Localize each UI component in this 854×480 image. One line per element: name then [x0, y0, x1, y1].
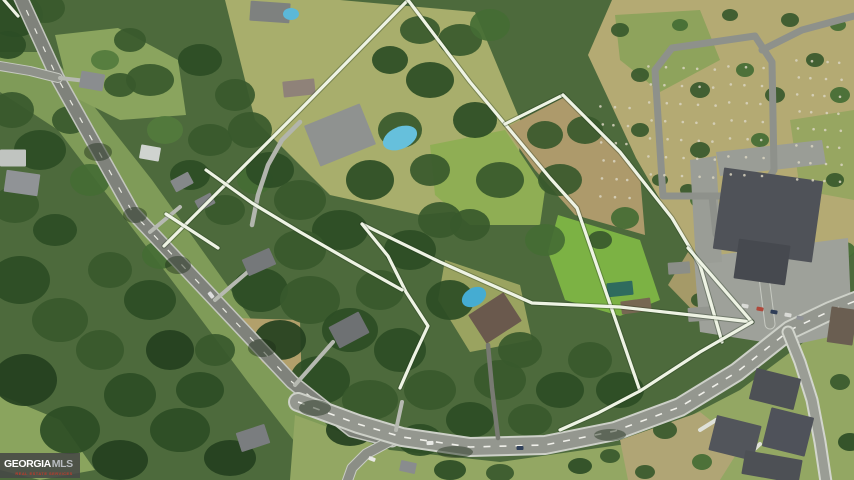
gravestone: [666, 102, 669, 105]
gravestone: [798, 161, 801, 164]
tree-canopy: [32, 298, 88, 342]
aerial-listing-photo: GEORGIA MLS REAL ESTATE SERVICES: [0, 0, 854, 480]
gravestone: [745, 66, 748, 69]
gravestone: [823, 180, 826, 183]
parked-car: [517, 446, 524, 450]
gravestone: [600, 141, 603, 144]
tree-canopy: [150, 408, 210, 452]
tree-canopy: [826, 173, 844, 187]
tree-canopy: [188, 124, 232, 156]
gravestone: [840, 79, 843, 82]
tree-canopy: [631, 123, 649, 137]
gravestone: [713, 122, 716, 125]
tree-shadow: [165, 256, 191, 274]
gravestone: [760, 139, 763, 142]
tree-canopy: [346, 160, 394, 200]
gravestone: [680, 139, 683, 142]
gravestone: [840, 130, 843, 133]
gravestone: [664, 120, 667, 123]
gravestone: [812, 94, 815, 97]
tree-canopy: [830, 87, 850, 103]
tree-canopy: [450, 209, 490, 241]
gravestone: [729, 137, 732, 140]
tree-shadow: [248, 339, 276, 357]
gravestone: [647, 155, 650, 158]
tree-canopy: [195, 334, 235, 366]
tree-canopy: [146, 330, 194, 370]
tree-canopy: [400, 16, 440, 44]
gravestone: [628, 197, 631, 200]
gravestone: [681, 85, 684, 88]
gravestone: [759, 103, 762, 106]
mls-watermark: GEORGIA MLS REAL ESTATE SERVICES: [0, 453, 80, 478]
tree-shadow: [84, 143, 112, 161]
tree-canopy: [76, 330, 124, 370]
gravestone: [809, 162, 812, 165]
cemetery-church-connector: [712, 196, 716, 234]
tree-canopy: [525, 224, 565, 256]
tree-canopy: [611, 207, 639, 229]
gravestone: [599, 195, 602, 198]
gravestone: [837, 113, 840, 116]
tree-shadow: [123, 207, 147, 223]
gravestone: [762, 121, 765, 124]
gravestone: [826, 146, 829, 149]
gravestone: [712, 176, 715, 179]
gravestone: [682, 157, 685, 160]
gravestone: [663, 84, 666, 87]
tree-canopy: [508, 404, 552, 436]
gravestone: [746, 138, 749, 141]
gravestone: [627, 125, 630, 128]
north-neighbor-pool: [283, 8, 299, 20]
gravestone: [679, 103, 682, 106]
tree-canopy: [631, 68, 649, 82]
tree-canopy: [806, 53, 824, 67]
tree-canopy: [406, 62, 454, 98]
gravestone: [649, 137, 652, 140]
gravestone: [650, 119, 653, 122]
gravestone: [602, 123, 605, 126]
tree-canopy: [690, 142, 710, 158]
gravestone: [615, 178, 618, 181]
gravestone: [650, 173, 653, 176]
tree-canopy: [672, 19, 688, 31]
gravestone: [647, 65, 650, 68]
gravestone: [601, 177, 604, 180]
shed-gray-1: [668, 261, 691, 275]
tree-canopy: [722, 9, 738, 21]
gravestone: [795, 59, 798, 62]
tree-canopy: [372, 46, 408, 74]
gravestone: [602, 159, 605, 162]
tree-canopy: [404, 370, 456, 410]
gravestone: [711, 140, 714, 143]
church-wing: [733, 239, 790, 286]
gravestone: [712, 86, 715, 89]
house-roof-icon: [52, 455, 854, 480]
gravestone: [682, 121, 685, 124]
gravestone: [810, 111, 813, 114]
gravestone: [838, 62, 841, 65]
tree-canopy: [498, 332, 542, 368]
tree-canopy: [147, 116, 183, 144]
gravestone: [614, 106, 617, 109]
gravestone: [811, 145, 814, 148]
gravestone: [826, 61, 829, 64]
gravestone: [626, 179, 629, 182]
gravestone: [648, 101, 651, 104]
tree-canopy: [446, 402, 494, 438]
tree-canopy: [232, 268, 288, 312]
gravestone: [665, 66, 668, 69]
gravestone: [761, 175, 764, 178]
shed-teal-roof: [606, 281, 633, 298]
gravestone: [826, 112, 829, 115]
gravestone: [612, 124, 615, 127]
tree-canopy: [178, 44, 222, 76]
tree-canopy: [536, 372, 584, 408]
gravestone: [728, 101, 731, 104]
tree-canopy: [830, 374, 850, 390]
watermark-brand-row: GEORGIA MLS: [4, 455, 73, 471]
gravestone: [663, 174, 666, 177]
gravestone: [839, 181, 842, 184]
gravestone: [823, 95, 826, 98]
gravestone: [825, 78, 828, 81]
tree-canopy: [88, 252, 132, 288]
watermark-brand-mls-wrap: MLS: [52, 455, 73, 471]
tree-canopy: [568, 342, 612, 378]
gravestone: [730, 173, 733, 176]
gravestone: [809, 77, 812, 80]
gravestone: [730, 119, 733, 122]
gravestone: [727, 65, 730, 68]
tree-canopy: [274, 180, 326, 220]
tree-canopy: [736, 63, 754, 77]
gravestone: [795, 144, 798, 147]
gravestone: [798, 110, 801, 113]
gravestone: [798, 76, 801, 79]
gravestone: [744, 120, 747, 123]
gravestone: [727, 155, 730, 158]
gravestone: [698, 176, 701, 179]
gravestone: [714, 104, 717, 107]
gravestone: [745, 156, 748, 159]
gravestone: [698, 140, 701, 143]
house-west-c: [0, 150, 26, 167]
tree-canopy: [104, 73, 136, 97]
watermark-brand-georgia: GEORGIA: [4, 459, 51, 470]
tree-canopy: [611, 23, 629, 37]
satellite-map: [0, 0, 854, 480]
tree-canopy: [470, 9, 510, 41]
gravestone: [698, 86, 701, 89]
gravestone: [614, 196, 617, 199]
gravestone: [796, 178, 799, 181]
tree-canopy: [104, 373, 156, 417]
tree-canopy: [476, 162, 524, 198]
tree-canopy: [215, 79, 255, 111]
tree-shadow: [594, 429, 626, 441]
tree-canopy: [124, 280, 176, 320]
gravestone: [743, 174, 746, 177]
gravestone: [824, 129, 827, 132]
gravestone: [797, 127, 800, 130]
tree-canopy: [33, 214, 77, 246]
house-west-d: [4, 170, 41, 197]
gravestone: [666, 138, 669, 141]
gravestone: [811, 60, 814, 63]
tree-canopy: [410, 154, 450, 186]
gravestone: [697, 104, 700, 107]
gravestone: [665, 156, 668, 159]
gravestone: [838, 147, 841, 150]
tree-canopy: [274, 230, 326, 270]
gravestone: [613, 160, 616, 163]
tree-canopy: [40, 406, 100, 454]
tree-canopy: [176, 372, 224, 408]
gravestone: [714, 68, 717, 71]
gravestone: [625, 143, 628, 146]
gravestone: [650, 83, 653, 86]
house-west-b: [282, 78, 315, 97]
gravestone: [812, 179, 815, 182]
gravestone: [762, 67, 765, 70]
parked-car: [426, 441, 433, 445]
gravestone: [681, 175, 684, 178]
tree-canopy: [114, 28, 146, 52]
gravestone: [730, 83, 733, 86]
gravestone: [839, 96, 842, 99]
gravestone: [840, 164, 843, 167]
tree-canopy: [91, 50, 119, 70]
gravestone: [695, 122, 698, 125]
gravestone: [762, 157, 765, 160]
gravestone: [825, 163, 828, 166]
gravestone: [714, 158, 717, 161]
gravestone: [682, 67, 685, 70]
gravestone: [696, 158, 699, 161]
tree-canopy: [781, 13, 799, 27]
gravestone: [761, 85, 764, 88]
gravestone: [599, 105, 602, 108]
gravestone: [812, 128, 815, 131]
tree-canopy: [527, 121, 563, 149]
tree-canopy: [690, 82, 710, 98]
gravestone: [743, 84, 746, 87]
tree-shadow: [299, 400, 331, 416]
gravestone: [696, 68, 699, 71]
gravestone: [796, 93, 799, 96]
gravestone: [628, 107, 631, 110]
gravestone: [746, 102, 749, 105]
